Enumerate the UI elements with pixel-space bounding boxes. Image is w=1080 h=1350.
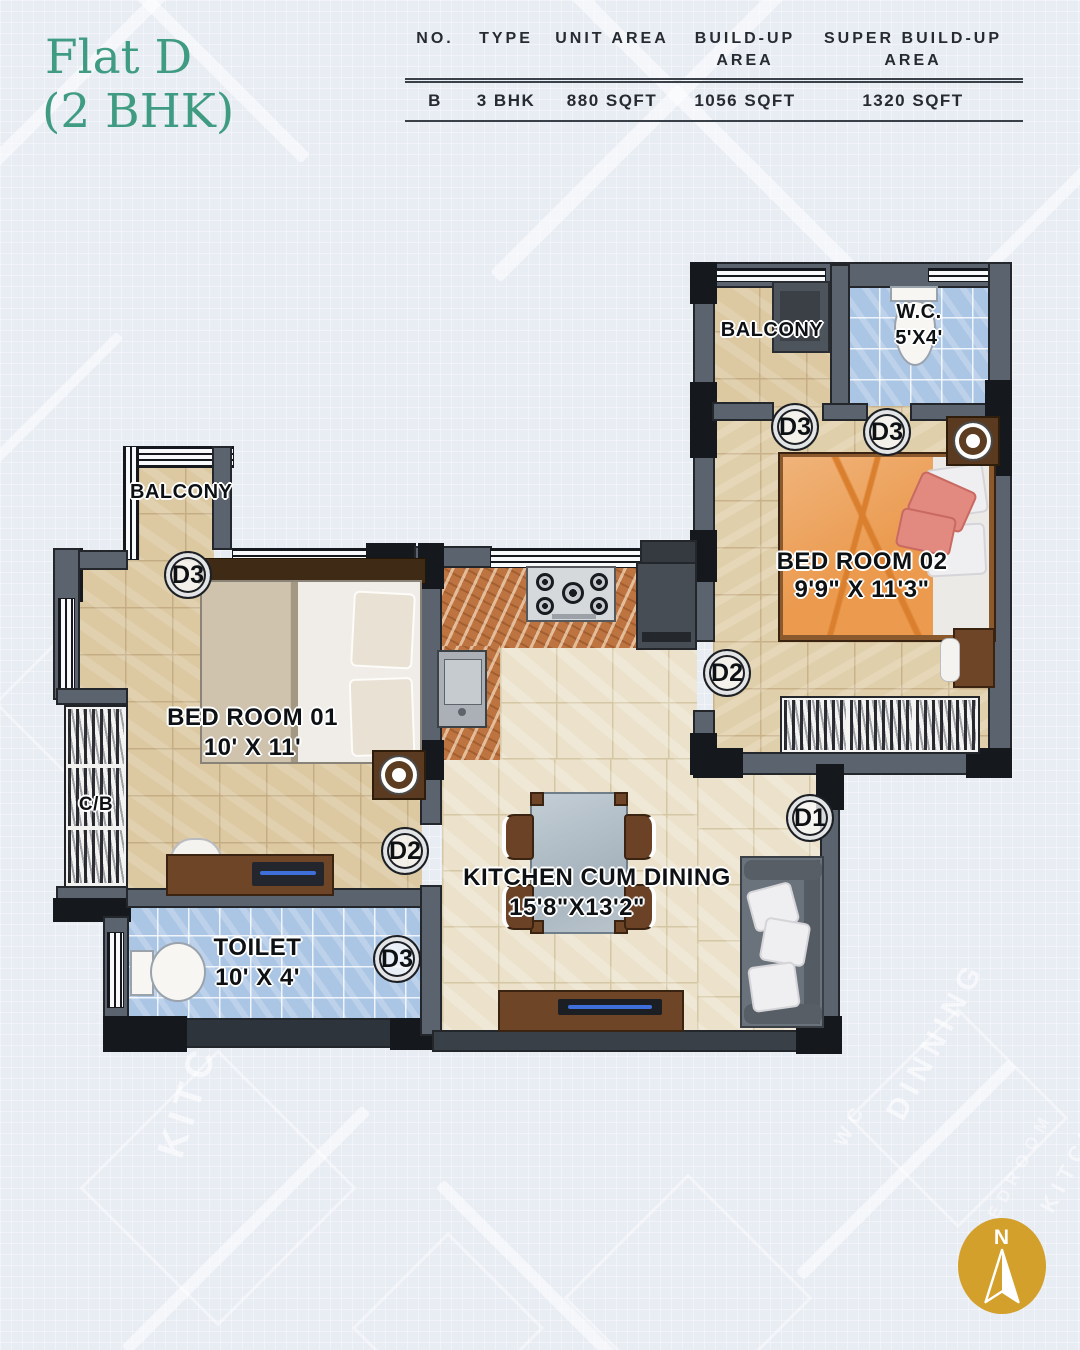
dining-chair-1 <box>502 814 534 860</box>
fan-icon-bed2 <box>953 421 993 461</box>
compass-north-label: N <box>994 1226 1010 1250</box>
door-d3-wc: D3 <box>863 408 911 456</box>
sink-icon <box>437 650 487 728</box>
kitchen-dining-label: KITCHEN CUM DINING <box>452 864 742 893</box>
kitchen-dining-dim: 15'8"X13'2" <box>452 894 702 923</box>
bed1-top-wall-a <box>78 550 128 570</box>
bed1-left-window <box>58 598 75 690</box>
balcony-wc-divider <box>830 264 850 416</box>
kitchen-top-window <box>490 548 642 568</box>
tv-unit <box>498 990 684 1032</box>
toilet-label: TOILET <box>170 934 345 963</box>
bed2-wardrobe <box>780 696 980 754</box>
door-d1-entrance: D1 <box>786 794 834 842</box>
sofa <box>740 856 824 1028</box>
bedroom1-label: BED ROOM 01 <box>140 704 365 733</box>
living-bottom-wall <box>432 1030 840 1052</box>
bed2-stool <box>940 638 960 682</box>
door-d2-bedroom2: D2 <box>703 649 751 697</box>
compass-north-arrow-icon <box>982 1248 1022 1306</box>
door-d3-toilet: D3 <box>373 935 421 983</box>
flat-d-floorplan-page: KITCHEN DINNING WC KITCHEN BEDROOM Flat … <box>0 0 1080 1350</box>
cb-cap-top <box>56 688 128 705</box>
door-d3-balcony-left: D3 <box>164 551 212 599</box>
north-compass: N <box>958 1218 1046 1314</box>
kitchen-cabinet <box>636 562 697 650</box>
bed2 <box>778 452 996 642</box>
wc-bottom-wall-b <box>822 403 868 421</box>
dining-chair-3 <box>624 814 656 860</box>
dining-floor-a <box>500 646 697 764</box>
bedroom1-dim: 10' X 11' <box>140 734 365 763</box>
toilet-dim: 10' X 4' <box>170 964 345 993</box>
fan-icon-bed1 <box>379 755 419 795</box>
door-d3-balcony-top: D3 <box>771 403 819 451</box>
wing-top-window <box>704 268 826 282</box>
toilet-left-window <box>107 932 124 1008</box>
bedroom2-dim: 9'9" X 11'3" <box>752 576 972 605</box>
wc-label: W.C. <box>848 300 990 324</box>
balcony-top-label: BALCONY <box>712 318 832 342</box>
door-d2-bedroom1: D2 <box>381 827 429 875</box>
washing-machine <box>772 281 830 353</box>
wc-dim: 5'X4' <box>848 326 990 350</box>
wc-top-window <box>928 268 990 282</box>
wc-bottom-wall-a <box>712 402 774 421</box>
floor-plan: BALCONY W.C. 5'X4' BED ROOM 02 9'9" X 11… <box>0 0 1080 1350</box>
stove-icon <box>526 566 616 622</box>
balcony-left-label: BALCONY <box>130 480 230 504</box>
bedroom2-label: BED ROOM 02 <box>752 548 972 577</box>
desk <box>166 854 334 896</box>
cupboard-label: C/B <box>66 794 126 817</box>
bed1-right-wall-lower <box>420 885 442 1036</box>
